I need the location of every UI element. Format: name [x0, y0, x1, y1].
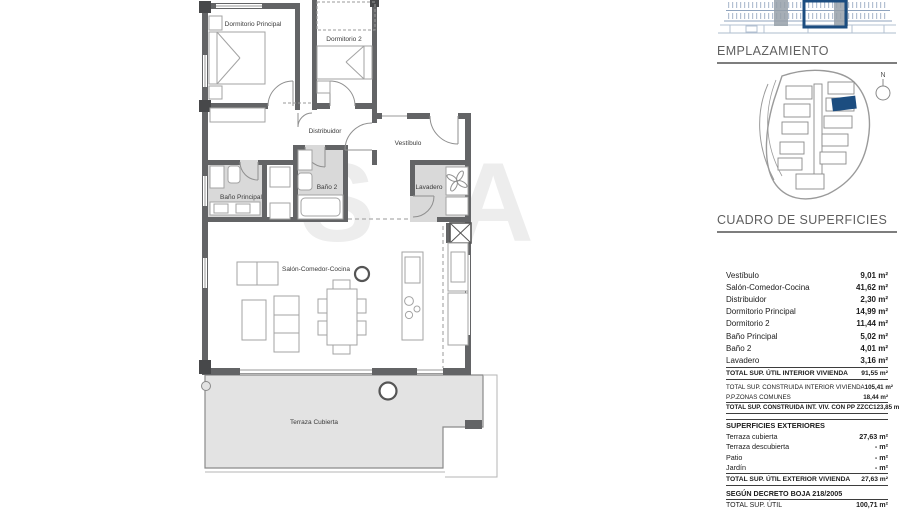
lamp-icon — [355, 267, 369, 281]
surface-row: TOTAL SUP. ÚTIL100,71 m² — [726, 500, 888, 511]
building-elevation — [716, 0, 898, 36]
furniture — [202, 16, 483, 429]
floor-plan-drawing: Dormitorio Principal Dormitorio 2 Distri… — [0, 0, 520, 500]
site-plan: N — [716, 66, 898, 208]
surface-row: Dormitorio 211,44 m² — [726, 318, 888, 330]
surface-row: Patio- m² — [726, 452, 888, 463]
sofa-icon — [237, 262, 299, 352]
built-surface-block: TOTAL SUP. CONSTRUIDA INTERIOR VIVIENDA1… — [726, 383, 888, 414]
terrace-pier — [465, 420, 482, 429]
room-label-vestibulo: Vestíbulo — [395, 140, 422, 147]
svg-text:N: N — [880, 72, 885, 79]
sidebar: EMPLAZAMIENTO N CUADRO DE S — [716, 0, 898, 500]
surface-total-construida: TOTAL SUP. CONSTRUIDA INT. VIV. CON PP Z… — [726, 402, 888, 414]
surface-row: Dormitorio Principal14,99 m² — [726, 306, 888, 318]
room-label-distribuidor: Distribuidor — [309, 128, 343, 135]
surface-total-interior: TOTAL SUP. ÚTIL INTERIOR VIVIENDA91,55 m… — [726, 367, 888, 380]
exterior-surfaces-block: SUPERFICIES EXTERIORES Terraza cubierta2… — [726, 419, 888, 486]
shaft-icon — [450, 223, 471, 243]
surface-total-exterior: TOTAL SUP. ÚTIL EXTERIOR VIVIENDA27,63 m… — [726, 473, 888, 486]
surface-row: Lavadero3,16 m² — [726, 354, 888, 366]
surface-row: Vestíbulo9,01 m² — [726, 269, 888, 281]
surface-row: Baño Principal5,02 m² — [726, 330, 888, 342]
room-label-dormitorio-principal: Dormitorio Principal — [225, 21, 282, 28]
washer-fan-icon — [441, 165, 472, 215]
surface-row: TOTAL SUP. CONSTRUIDA INTERIOR VIVIENDA1… — [726, 383, 888, 393]
room-label-lavadero: Lavadero — [415, 184, 442, 191]
surface-row: Distribuidor2,30 m² — [726, 293, 888, 305]
kitchen-cabinets-icon — [448, 243, 468, 345]
room-label-salon: Salón-Comedor-Cocina — [282, 266, 350, 273]
wardrobe-dashed — [317, 2, 375, 30]
terrace-column-icon — [202, 382, 211, 391]
cuadro-title: CUADRO DE SUPERFICIES — [717, 213, 897, 233]
terrace-table-icon — [380, 383, 397, 400]
emplazamiento-title: EMPLAZAMIENTO — [717, 44, 897, 64]
north-compass-icon: N — [876, 72, 890, 100]
surface-row: Terraza cubierta27,63 m² — [726, 431, 888, 442]
tree-silhouette — [774, 0, 788, 26]
surface-row: P.P.ZONAS COMUNES18,44 m² — [726, 392, 888, 402]
floorplan-page: { "floorplan": { "rooms": { "dormitorio_… — [0, 0, 899, 500]
kitchen-island-icon — [402, 252, 423, 340]
surface-row: Jardín- m² — [726, 463, 888, 474]
closet-shelves-icon — [270, 167, 290, 219]
room-label-bano-principal: Baño Principal — [220, 194, 262, 201]
decreto-block: SEGÚN DECRETO BOJA 218/2005 TOTAL SUP. Ú… — [726, 488, 888, 511]
room-label-terraza: Terraza Cubierta — [290, 419, 338, 426]
dining-table-icon — [318, 280, 366, 354]
decreto-title: SEGÚN DECRETO BOJA 218/2005 — [726, 488, 888, 500]
terrace-area — [205, 375, 483, 468]
surface-row: Salón-Comedor-Cocina41,62 m² — [726, 281, 888, 293]
surface-row: Terraza descubierta- m² — [726, 441, 888, 452]
surface-row: Baño 24,01 m² — [726, 342, 888, 354]
room-label-bano-2: Baño 2 — [317, 184, 338, 191]
room-label-dormitorio-2: Dormitorio 2 — [326, 36, 362, 43]
surfaces-table: Vestíbulo9,01 m² Salón-Comedor-Cocina41,… — [726, 269, 888, 511]
exterior-surfaces-title: SUPERFICIES EXTERIORES — [726, 420, 888, 431]
